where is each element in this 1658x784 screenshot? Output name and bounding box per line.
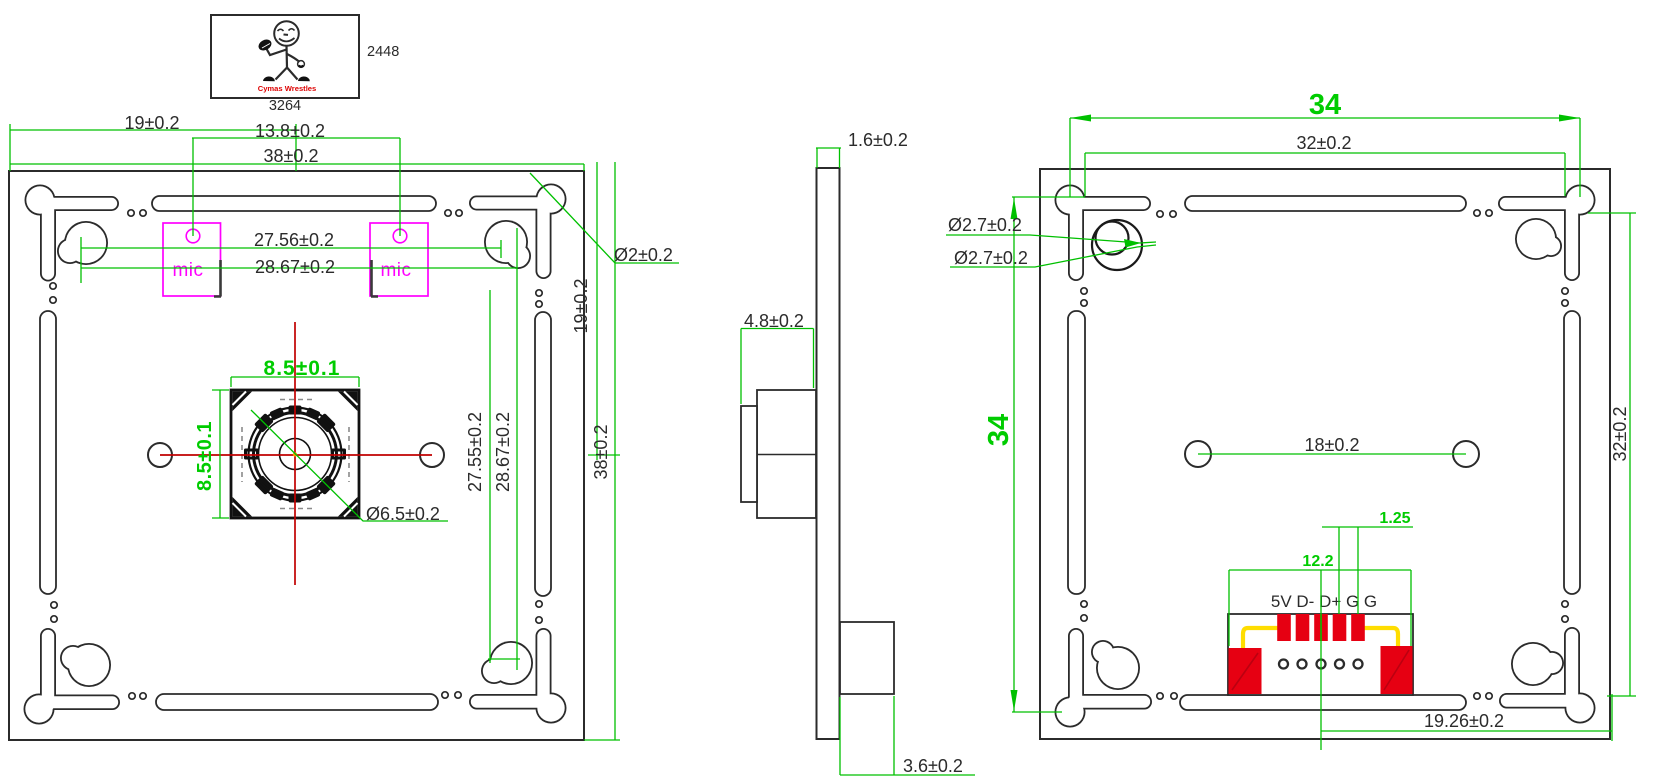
svg-text:Cymas Wrestles: Cymas Wrestles — [258, 84, 317, 93]
svg-text:19.26±0.2: 19.26±0.2 — [1424, 711, 1504, 731]
svg-text:12.2: 12.2 — [1302, 553, 1333, 570]
svg-text:38±0.2: 38±0.2 — [591, 425, 611, 480]
svg-text:38±0.2: 38±0.2 — [264, 146, 319, 166]
svg-text:34: 34 — [983, 414, 1015, 446]
svg-text:1.25: 1.25 — [1379, 510, 1410, 527]
svg-text:5V D- D+ G G: 5V D- D+ G G — [1271, 592, 1377, 611]
svg-text:13.8±0.2: 13.8±0.2 — [255, 121, 325, 141]
svg-text:27.55±0.2: 27.55±0.2 — [465, 412, 485, 492]
svg-text:Ø2±0.2: Ø2±0.2 — [614, 245, 673, 265]
svg-text:3.6±0.2: 3.6±0.2 — [903, 756, 963, 776]
svg-text:mic: mic — [172, 260, 203, 281]
svg-text:32±0.2: 32±0.2 — [1610, 407, 1630, 462]
svg-text:3264: 3264 — [269, 98, 301, 114]
svg-text:2448: 2448 — [367, 44, 399, 60]
svg-text:Ø2.7±0.2: Ø2.7±0.2 — [954, 248, 1028, 268]
svg-text:27.56±0.2: 27.56±0.2 — [254, 230, 334, 250]
svg-text:4.8±0.2: 4.8±0.2 — [744, 311, 804, 331]
svg-text:8.5±0.1: 8.5±0.1 — [194, 421, 216, 491]
svg-text:18±0.2: 18±0.2 — [1305, 435, 1360, 455]
svg-text:1.6±0.2: 1.6±0.2 — [848, 130, 908, 150]
svg-text:32±0.2: 32±0.2 — [1297, 133, 1352, 153]
svg-text:Ø6.5±0.2: Ø6.5±0.2 — [366, 504, 440, 524]
svg-text:mic: mic — [380, 260, 411, 281]
svg-text:19±0.2: 19±0.2 — [571, 279, 591, 334]
svg-text:19±0.2: 19±0.2 — [125, 113, 180, 133]
svg-text:28.67±0.2: 28.67±0.2 — [255, 257, 335, 277]
svg-text:Ø2.7±0.2: Ø2.7±0.2 — [948, 215, 1022, 235]
svg-text:34: 34 — [1309, 89, 1341, 121]
svg-text:28.67±0.2: 28.67±0.2 — [493, 412, 513, 492]
svg-text:8.5±0.1: 8.5±0.1 — [264, 357, 341, 380]
